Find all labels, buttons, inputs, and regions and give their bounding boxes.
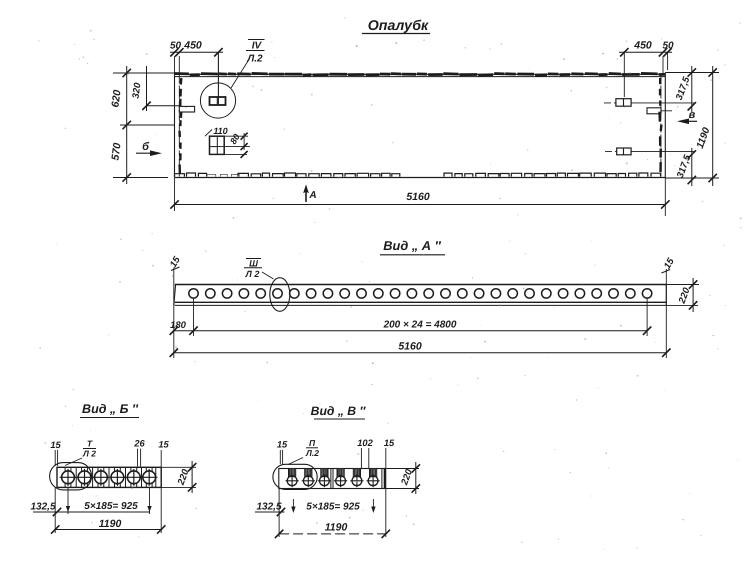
- svg-text:Вид „ В ″: Вид „ В ″: [311, 404, 367, 418]
- svg-text:5160: 5160: [398, 341, 422, 353]
- svg-text:132,5: 132,5: [256, 502, 281, 513]
- svg-text:570: 570: [109, 142, 123, 161]
- svg-text:50: 50: [662, 41, 674, 52]
- svg-text:180: 180: [170, 320, 187, 331]
- svg-text:Ш: Ш: [249, 259, 258, 269]
- svg-text:1190: 1190: [99, 518, 122, 530]
- svg-text:1190: 1190: [325, 522, 348, 534]
- svg-text:Вид „ Б ″: Вид „ Б ″: [82, 402, 139, 416]
- svg-text:200 × 24 = 4800: 200 × 24 = 4800: [383, 320, 457, 331]
- svg-text:A: A: [308, 190, 316, 201]
- svg-text:б: б: [142, 141, 150, 153]
- svg-text:450: 450: [183, 40, 202, 52]
- svg-text:132,5: 132,5: [30, 502, 55, 513]
- svg-text:26: 26: [133, 439, 145, 449]
- svg-text:15: 15: [50, 440, 61, 450]
- svg-text:110: 110: [213, 126, 227, 136]
- svg-text:50: 50: [170, 41, 182, 52]
- svg-text:Вид „ А ″: Вид „ А ″: [383, 238, 441, 253]
- svg-text:15: 15: [384, 438, 395, 448]
- svg-text:IV: IV: [252, 41, 263, 52]
- svg-text:320: 320: [131, 81, 144, 99]
- svg-text:Л.2: Л.2: [246, 54, 263, 65]
- svg-text:5160: 5160: [406, 191, 430, 203]
- svg-text:Т: Т: [87, 439, 93, 449]
- svg-text:15: 15: [158, 440, 169, 450]
- svg-text:Л 2: Л 2: [82, 449, 96, 459]
- svg-text:102: 102: [357, 438, 373, 448]
- svg-text:15: 15: [277, 440, 288, 450]
- svg-text:Л.2: Л.2: [305, 448, 319, 458]
- svg-text:П: П: [309, 438, 316, 448]
- svg-text:5×185= 925: 5×185= 925: [84, 501, 138, 512]
- svg-text:620: 620: [109, 89, 123, 108]
- svg-text:Л 2: Л 2: [245, 269, 260, 279]
- svg-text:450: 450: [633, 40, 652, 52]
- svg-text:Опалубк: Опалубк: [368, 18, 429, 34]
